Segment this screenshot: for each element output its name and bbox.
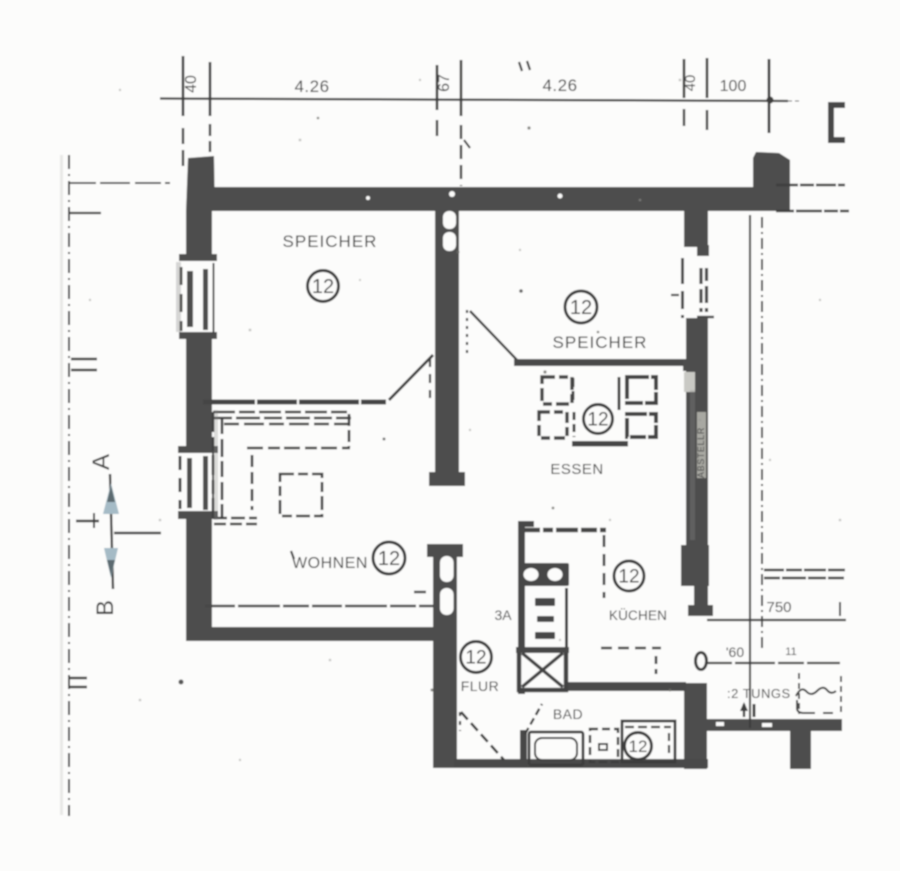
svg-text:100: 100 [720, 78, 747, 95]
svg-text:ESSEN: ESSEN [550, 461, 603, 478]
svg-text:11: 11 [785, 646, 796, 658]
svg-text:ABSTELLR: ABSTELLR [696, 427, 706, 478]
svg-text:12: 12 [618, 567, 639, 588]
svg-text:12: 12 [312, 276, 334, 298]
svg-text:B: B [92, 600, 119, 616]
svg-text:A: A [88, 454, 115, 470]
svg-text:12: 12 [629, 737, 648, 756]
svg-text:40: 40 [183, 75, 200, 93]
svg-text:FLUR: FLUR [461, 678, 500, 694]
svg-text:SPEICHER: SPEICHER [553, 333, 648, 352]
svg-text::2 TUNGS: :2 TUNGS [727, 686, 791, 701]
svg-text:4.26: 4.26 [294, 77, 329, 96]
svg-text:40: 40 [682, 75, 699, 92]
svg-text:12: 12 [378, 548, 400, 570]
svg-text:12: 12 [570, 297, 592, 319]
svg-text:4.26: 4.26 [542, 76, 577, 95]
svg-text:WOHNEN: WOHNEN [292, 555, 368, 572]
svg-text:BAD: BAD [553, 706, 583, 722]
svg-text:750: 750 [766, 599, 791, 616]
svg-text:'60: '60 [726, 644, 744, 660]
svg-text:12: 12 [465, 648, 486, 669]
svg-text:12: 12 [587, 410, 608, 431]
svg-text:KÜCHEN: KÜCHEN [609, 608, 667, 623]
svg-text:SPEICHER: SPEICHER [283, 232, 378, 251]
svg-text:3A: 3A [494, 607, 512, 623]
svg-text:67: 67 [436, 74, 453, 92]
